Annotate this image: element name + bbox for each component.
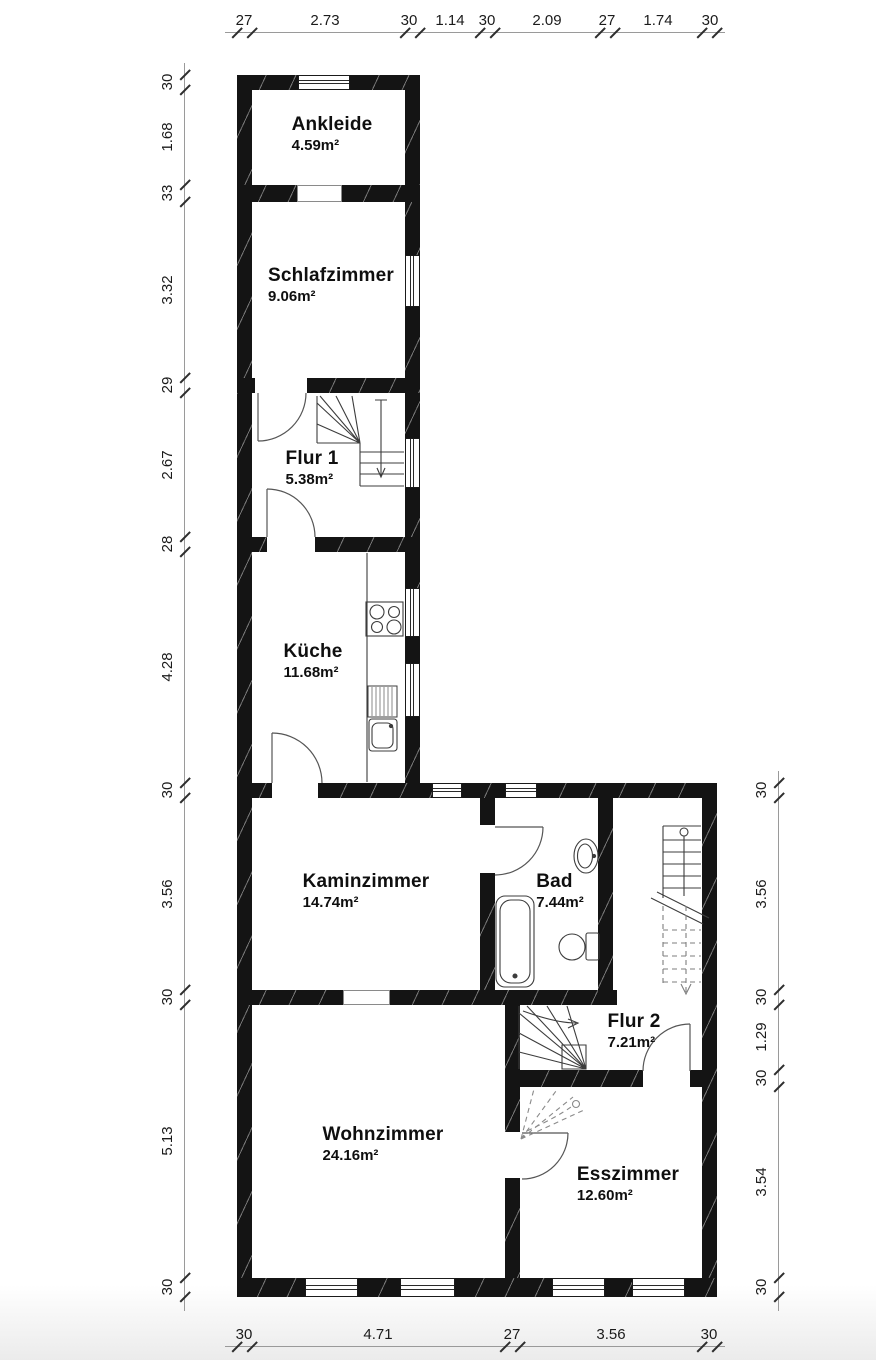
- wall-opening: [297, 185, 342, 202]
- dimension-line-right: [778, 771, 779, 1311]
- dim-label: 4.71: [348, 1326, 408, 1343]
- window: [400, 1278, 455, 1297]
- dimension-tick: [180, 1291, 191, 1302]
- room-area: 14.74m²: [303, 894, 430, 911]
- wall-segment: [237, 990, 343, 1005]
- room-area: 12.60m²: [577, 1187, 679, 1204]
- window: [405, 663, 420, 717]
- room-name: Esszimmer: [577, 1164, 679, 1186]
- dim-label: 3.56: [159, 864, 177, 924]
- window: [632, 1278, 685, 1297]
- wall-segment: [390, 990, 617, 1005]
- door-schlafzimmer-flur1: [258, 393, 306, 441]
- window: [305, 1278, 358, 1297]
- dimension-tick: [180, 546, 191, 557]
- dim-label: 30: [159, 760, 177, 820]
- wall-segment: [505, 1005, 520, 1132]
- dimension-tick: [180, 179, 191, 190]
- dimension-tick: [774, 792, 785, 803]
- room-area: 7.21m²: [608, 1034, 661, 1051]
- wall-segment: [237, 783, 272, 798]
- dimension-tick: [180, 777, 191, 788]
- floor-plan-canvas: 27 2.73 30 1.14 30 2.09 27 1.74 30 30 1.…: [0, 0, 876, 1360]
- dimension-tick: [774, 777, 785, 788]
- wall-segment: [480, 798, 495, 825]
- dimension-tick: [774, 999, 785, 1010]
- dim-label: 30: [753, 760, 771, 820]
- dimension-tick: [774, 1064, 785, 1075]
- dim-label: 3.32: [159, 260, 177, 320]
- dim-label: 30: [679, 1326, 739, 1343]
- window: [505, 783, 537, 798]
- wall-segment: [685, 1278, 717, 1297]
- room-name: Wohnzimmer: [323, 1124, 444, 1146]
- room-name: Flur 1: [286, 448, 339, 470]
- wall-segment: [598, 798, 613, 1005]
- wall-segment: [520, 1070, 643, 1087]
- dimension-tick: [180, 792, 191, 803]
- toilet: [559, 933, 599, 960]
- door-kueche: [272, 733, 322, 783]
- dimension-tick: [774, 1081, 785, 1092]
- dim-label: 30: [159, 52, 177, 112]
- room-area: 5.38m²: [286, 471, 339, 488]
- dimension-tick: [180, 196, 191, 207]
- dim-label: 2.67: [159, 435, 177, 495]
- stove: [366, 602, 403, 636]
- dimension-line-bottom: [225, 1346, 725, 1347]
- room-name: Schlafzimmer: [268, 265, 394, 287]
- room-area: 11.68m²: [283, 664, 342, 681]
- wall-segment: [237, 537, 267, 552]
- dim-label: 29: [159, 355, 177, 415]
- wall-segment: [350, 75, 420, 90]
- room-name: Flur 2: [608, 1011, 661, 1033]
- room-area: 9.06m²: [268, 288, 394, 305]
- winder-stairs-flur2: [519, 1006, 586, 1069]
- wall-segment: [505, 1178, 520, 1278]
- room-label-kaminzimmer: Kaminzimmer 14.74m²: [303, 871, 430, 911]
- dimension-tick: [774, 1272, 785, 1283]
- dim-label: 1.74: [628, 12, 688, 29]
- wall-segment: [405, 637, 420, 663]
- dim-label: 3.56: [581, 1326, 641, 1343]
- window: [432, 783, 462, 798]
- dimension-line-left: [184, 63, 185, 1311]
- dim-label: 30: [214, 1326, 274, 1343]
- wall-segment: [318, 783, 432, 798]
- dim-label: 27: [214, 12, 274, 29]
- main-stairs: [651, 826, 709, 994]
- dimension-tick: [180, 69, 191, 80]
- wall-segment: [237, 378, 255, 393]
- kitchen-sink: [369, 719, 397, 751]
- dimension-tick: [774, 984, 785, 995]
- dim-label: 30: [159, 967, 177, 1027]
- dimension-tick: [180, 999, 191, 1010]
- dim-label: 30: [753, 1048, 771, 1108]
- dim-label: 3.54: [753, 1152, 771, 1212]
- wall-segment: [405, 307, 420, 438]
- room-label-bad: Bad 7.44m²: [536, 871, 584, 911]
- wall-segment: [237, 185, 297, 202]
- door-wohnzimmer-esszimmer: [522, 1133, 568, 1179]
- wall-segment: [237, 1278, 305, 1297]
- wall-segment: [690, 1070, 702, 1087]
- wall-segment: [537, 783, 717, 798]
- dim-label: 27: [482, 1326, 542, 1343]
- dimension-tick: [180, 984, 191, 995]
- window: [552, 1278, 605, 1297]
- dimension-tick: [180, 84, 191, 95]
- dim-label: 30: [457, 12, 517, 29]
- window: [405, 438, 420, 488]
- dim-label: 2.73: [295, 12, 355, 29]
- door-bad: [495, 827, 543, 875]
- dim-label: 30: [753, 1257, 771, 1317]
- wall-segment: [605, 1278, 632, 1297]
- room-label-schlafzimmer: Schlafzimmer 9.06m²: [268, 265, 394, 305]
- room-area: 7.44m²: [536, 894, 584, 911]
- room-label-flur2: Flur 2 7.21m²: [608, 1011, 661, 1051]
- wall-segment: [462, 783, 505, 798]
- room-area: 24.16m²: [323, 1147, 444, 1164]
- bathtub: [496, 896, 534, 987]
- room-label-wohnzimmer: Wohnzimmer 24.16m²: [323, 1124, 444, 1164]
- wall-segment: [480, 873, 495, 990]
- wall-segment: [405, 90, 420, 255]
- wall-segment: [405, 717, 420, 783]
- room-label-esszimmer: Esszimmer 12.60m²: [577, 1164, 679, 1204]
- dimension-tick: [180, 1272, 191, 1283]
- dim-label: 30: [680, 12, 740, 29]
- window: [405, 255, 420, 307]
- dimension-line-top: [225, 32, 725, 33]
- wall-segment: [702, 783, 717, 1297]
- drainer: [368, 686, 397, 717]
- dim-label: 33: [159, 163, 177, 223]
- wall-segment: [342, 185, 420, 202]
- winder-stairs-dashed: [521, 1089, 584, 1139]
- dim-label: 5.13: [159, 1111, 177, 1171]
- window: [405, 588, 420, 637]
- room-area: 4.59m²: [292, 137, 373, 154]
- room-label-kueche: Küche 11.68m²: [283, 641, 342, 681]
- wall-segment: [237, 75, 252, 1297]
- dim-label: 30: [159, 1257, 177, 1317]
- room-name: Küche: [283, 641, 342, 663]
- dim-label: 4.28: [159, 637, 177, 697]
- room-label-ankleide: Ankleide 4.59m²: [292, 114, 373, 154]
- room-label-flur1: Flur 1 5.38m²: [286, 448, 339, 488]
- wall-segment: [315, 537, 420, 552]
- door-flur1-kueche: [267, 489, 315, 537]
- wall-segment: [358, 1278, 400, 1297]
- dimension-tick: [774, 1291, 785, 1302]
- dim-label: 3.56: [753, 864, 771, 924]
- washbasin: [574, 839, 598, 873]
- dim-label: 1.68: [159, 107, 177, 167]
- room-name: Bad: [536, 871, 584, 893]
- dim-label: 28: [159, 514, 177, 574]
- dimension-tick: [180, 372, 191, 383]
- wall-opening: [343, 990, 390, 1005]
- dim-label: 2.09: [517, 12, 577, 29]
- room-name: Kaminzimmer: [303, 871, 430, 893]
- window: [298, 75, 350, 90]
- room-name: Ankleide: [292, 114, 373, 136]
- dimension-tick: [180, 387, 191, 398]
- wall-segment: [307, 378, 420, 393]
- wall-segment: [455, 1278, 552, 1297]
- dimension-tick: [180, 531, 191, 542]
